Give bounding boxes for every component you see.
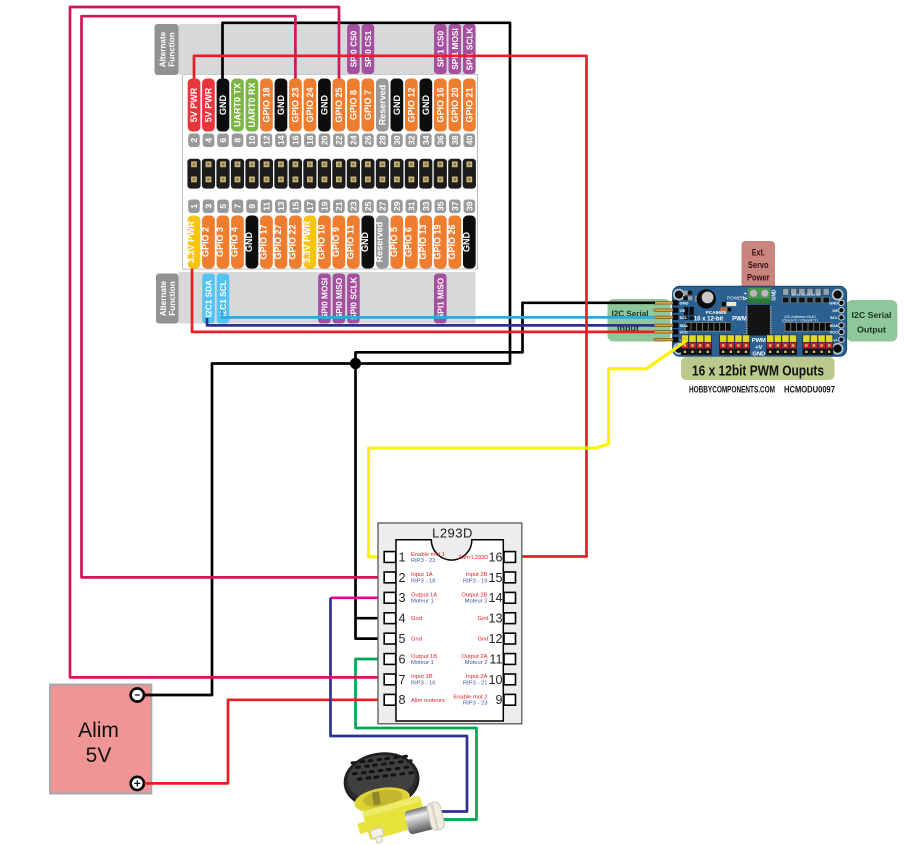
svg-text:GPIO 22: GPIO 22 xyxy=(287,224,297,259)
svg-text:Servo: Servo xyxy=(748,260,769,270)
svg-text:16: 16 xyxy=(488,550,502,564)
svg-text:GPIO 13: GPIO 13 xyxy=(418,224,428,259)
svg-text:GPIO 5: GPIO 5 xyxy=(389,227,399,257)
svg-text:3.3V PWR: 3.3V PWR xyxy=(186,220,196,263)
svg-text:SPI0 CS0: SPI0 CS0 xyxy=(348,30,358,67)
svg-text:GND: GND xyxy=(421,95,431,116)
svg-text:L293D: L293D xyxy=(432,526,473,541)
svg-text:Gnd: Gnd xyxy=(411,637,422,643)
svg-text:GPIO 10: GPIO 10 xyxy=(316,224,326,259)
svg-text:5V PWR: 5V PWR xyxy=(204,87,214,122)
svg-text:Ext.: Ext. xyxy=(752,248,765,258)
svg-text:6: 6 xyxy=(218,138,228,143)
svg-text:SPI0 SCLK: SPI0 SCLK xyxy=(348,277,358,320)
svg-text:GPIO 11: GPIO 11 xyxy=(345,225,355,260)
svg-text:29: 29 xyxy=(392,201,402,211)
svg-text:GPIO 26: GPIO 26 xyxy=(447,224,457,259)
svg-text:GND: GND xyxy=(218,95,228,116)
svg-text:GND: GND xyxy=(360,232,370,253)
svg-text:11: 11 xyxy=(489,652,502,666)
svg-text:OE: OE xyxy=(680,308,686,313)
svg-text:GND: GND xyxy=(392,95,402,116)
svg-text:POWER: POWER xyxy=(727,296,745,301)
svg-text:Power: Power xyxy=(747,273,770,283)
svg-text:Output: Output xyxy=(857,325,886,335)
svg-text:SPI1 CS0: SPI1 CS0 xyxy=(435,30,445,67)
svg-text:Enable mot 1: Enable mot 1 xyxy=(411,552,445,558)
svg-text:GPIO 9: GPIO 9 xyxy=(331,227,341,257)
svg-text:PWM: PWM xyxy=(752,338,766,344)
svg-text:21: 21 xyxy=(334,201,344,211)
svg-text:GPIO 3: GPIO 3 xyxy=(215,227,225,257)
svg-text:+V: +V xyxy=(755,345,762,351)
svg-text:26: 26 xyxy=(363,135,373,145)
svg-text:Input 2B: Input 2B xyxy=(466,572,488,578)
svg-text:38: 38 xyxy=(450,135,460,145)
svg-text:34: 34 xyxy=(421,135,431,145)
svg-text:13: 13 xyxy=(276,201,286,211)
svg-text:31: 31 xyxy=(407,201,417,211)
svg-text:Output 2B: Output 2B xyxy=(461,593,487,599)
svg-text:2: 2 xyxy=(189,138,199,143)
svg-text:16: 16 xyxy=(291,135,301,145)
svg-text:Moteur 1: Moteur 1 xyxy=(411,599,434,605)
svg-text:Enable mot 2: Enable mot 2 xyxy=(453,695,487,701)
svg-text:RIP3 - 18: RIP3 - 18 xyxy=(411,578,436,584)
svg-text:10: 10 xyxy=(247,135,257,145)
svg-text:GPIO 4: GPIO 4 xyxy=(230,227,240,257)
svg-text:22: 22 xyxy=(334,135,344,145)
svg-text:RIP3 - 19: RIP3 - 19 xyxy=(463,578,488,584)
svg-text:4: 4 xyxy=(399,612,406,626)
svg-text:HOBBYCOMPONENTS.COM: HOBBYCOMPONENTS.COM xyxy=(689,385,775,395)
svg-text:Input 1B: Input 1B xyxy=(411,674,433,680)
svg-text:GPIO 19: GPIO 19 xyxy=(432,224,442,259)
svg-text:GPIO 23: GPIO 23 xyxy=(291,87,301,122)
svg-text:10: 10 xyxy=(488,673,502,687)
svg-text:5: 5 xyxy=(399,632,406,646)
svg-text:VCC: VCC xyxy=(680,330,689,335)
svg-text:V+: V+ xyxy=(833,337,839,342)
svg-text:GND: GND xyxy=(680,301,689,306)
svg-text:SCL: SCL xyxy=(680,315,689,320)
svg-text:SPI1 MISO: SPI1 MISO xyxy=(435,277,445,319)
svg-text:Alim moteurs: Alim moteurs xyxy=(411,698,445,704)
svg-text:19: 19 xyxy=(320,201,330,211)
svg-text:GPIO 18: GPIO 18 xyxy=(262,87,272,122)
svg-text:23: 23 xyxy=(349,201,359,211)
svg-text:GPIO 25: GPIO 25 xyxy=(334,87,344,122)
svg-text:GPIO 20: GPIO 20 xyxy=(450,87,460,122)
svg-text:16 x 12-bit: 16 x 12-bit xyxy=(694,317,723,323)
svg-text:Reserved: Reserved xyxy=(374,222,384,263)
svg-text:Function: Function xyxy=(168,32,177,67)
svg-text:13: 13 xyxy=(488,612,502,626)
svg-text:GPIO 8: GPIO 8 xyxy=(349,90,359,120)
svg-text:Alternate: Alternate xyxy=(158,31,167,67)
svg-text:GND: GND xyxy=(276,95,286,116)
svg-text:GND: GND xyxy=(320,95,330,116)
svg-text:GND: GND xyxy=(829,301,838,306)
svg-text:GPIO 2: GPIO 2 xyxy=(201,227,211,257)
svg-text:SPI0 MISO: SPI0 MISO xyxy=(334,277,344,319)
svg-text:GND: GND xyxy=(461,232,471,253)
svg-text:7: 7 xyxy=(399,673,406,687)
svg-text:Gnd: Gnd xyxy=(411,616,422,622)
svg-text:32: 32 xyxy=(407,135,417,145)
svg-text:24: 24 xyxy=(349,135,359,145)
svg-text:UART0 RX: UART0 RX xyxy=(247,82,257,127)
svg-text:SPI0 MOSI: SPI0 MOSI xyxy=(319,278,329,320)
svg-text:15: 15 xyxy=(291,201,301,211)
svg-text:SDA: SDA xyxy=(680,323,689,328)
svg-text:SPI0 CS1: SPI0 CS1 xyxy=(363,30,373,67)
svg-text:Alim L293D: Alim L293D xyxy=(459,555,489,561)
svg-text:A0 A1 A2 A3 A4 A5: A0 A1 A2 A3 A4 A5 xyxy=(792,293,821,297)
svg-text:RIP3 - 23: RIP3 - 23 xyxy=(463,701,488,707)
svg-text:GPIO 12: GPIO 12 xyxy=(407,87,417,122)
svg-text:GPIO 6: GPIO 6 xyxy=(403,227,413,257)
svg-text:11: 11 xyxy=(262,201,272,210)
svg-text:Output 1A: Output 1A xyxy=(411,593,437,599)
svg-text:37: 37 xyxy=(450,201,460,211)
svg-text:16 x 12bit PWM Ouputs: 16 x 12bit PWM Ouputs xyxy=(692,364,824,380)
svg-text:Reserved: Reserved xyxy=(378,85,388,126)
svg-text:3.3V PWR: 3.3V PWR xyxy=(302,220,312,263)
svg-text:18: 18 xyxy=(305,135,315,145)
svg-text:Alim: Alim xyxy=(78,719,119,742)
svg-text:Gnd: Gnd xyxy=(478,637,489,643)
svg-text:5V PWR: 5V PWR xyxy=(189,87,199,122)
svg-text:GPIO 24: GPIO 24 xyxy=(305,87,315,122)
svg-text:GND: GND xyxy=(771,289,777,301)
svg-text:1: 1 xyxy=(399,550,406,564)
svg-text:12: 12 xyxy=(262,135,272,145)
svg-text:39: 39 xyxy=(464,201,474,211)
svg-text:GPIO 16: GPIO 16 xyxy=(436,87,446,122)
svg-text:RIP3 - 21: RIP3 - 21 xyxy=(463,680,488,686)
svg-text:14: 14 xyxy=(488,591,502,605)
svg-text:1: 1 xyxy=(189,204,199,209)
svg-text:28: 28 xyxy=(378,135,388,145)
svg-text:GND: GND xyxy=(752,351,765,357)
svg-text:OE: OE xyxy=(832,308,838,313)
svg-text:9: 9 xyxy=(495,693,502,707)
svg-text:25: 25 xyxy=(363,201,373,211)
svg-text:RIP3 - 22: RIP3 - 22 xyxy=(411,558,436,564)
svg-text:3: 3 xyxy=(399,591,406,605)
svg-text:15: 15 xyxy=(488,571,502,585)
svg-text:6: 6 xyxy=(399,652,406,666)
svg-text:27: 27 xyxy=(378,201,388,211)
svg-text:40: 40 xyxy=(464,135,474,145)
svg-text:GPIO 7: GPIO 7 xyxy=(363,90,373,120)
svg-text:8: 8 xyxy=(399,693,406,707)
svg-text:5: 5 xyxy=(218,204,228,209)
svg-text:Output 2A: Output 2A xyxy=(461,654,487,660)
svg-text:I2C1 SDA: I2C1 SDA xyxy=(204,280,214,317)
svg-text:Output 1B: Output 1B xyxy=(411,654,437,660)
svg-text:9: 9 xyxy=(247,204,257,209)
svg-text:PCA9685: PCA9685 xyxy=(706,310,727,316)
svg-text:I2C Serial: I2C Serial xyxy=(852,310,892,320)
svg-text:Moteur 2: Moteur 2 xyxy=(465,599,488,605)
svg-text:Input 2A: Input 2A xyxy=(466,674,488,680)
svg-text:2: 2 xyxy=(399,571,406,585)
svg-text:3: 3 xyxy=(204,204,214,209)
svg-text:5V: 5V xyxy=(86,744,112,767)
svg-text:35: 35 xyxy=(435,201,445,211)
svg-text:17: 17 xyxy=(305,201,315,211)
svg-text:Moteur 1: Moteur 1 xyxy=(411,660,434,666)
svg-text:4: 4 xyxy=(204,138,214,143)
svg-text:20: 20 xyxy=(320,135,330,145)
svg-text:UART0 TX: UART0 TX xyxy=(233,83,243,127)
svg-text:7: 7 xyxy=(233,204,243,209)
svg-text:VCC: VCC xyxy=(830,330,839,335)
svg-text:GND: GND xyxy=(244,232,254,253)
svg-text:Gnd: Gnd xyxy=(478,616,489,622)
svg-text:Input 1A: Input 1A xyxy=(411,572,433,578)
svg-text:GPIO 27: GPIO 27 xyxy=(273,224,283,259)
svg-text:SCL: SCL xyxy=(830,315,839,320)
svg-text:Moteur 2: Moteur 2 xyxy=(465,660,488,666)
svg-text:SDA: SDA xyxy=(830,323,839,328)
svg-text:SPI1 MOSI: SPI1 MOSI xyxy=(450,28,460,70)
svg-text:GPIO 21: GPIO 21 xyxy=(465,87,475,122)
svg-text:14: 14 xyxy=(276,135,286,145)
svg-text:33: 33 xyxy=(421,201,431,211)
svg-text:Function: Function xyxy=(168,281,177,316)
svg-text:12: 12 xyxy=(488,632,502,646)
svg-text:HCMODU0097: HCMODU0097 xyxy=(784,385,835,395)
svg-text:PWM: PWM xyxy=(732,317,747,323)
svg-text:36: 36 xyxy=(435,135,445,145)
svg-text:8: 8 xyxy=(233,138,243,143)
svg-text:30: 30 xyxy=(392,135,402,145)
svg-text:GPIO 17: GPIO 17 xyxy=(258,224,268,259)
svg-text:SPI1 SCLK: SPI1 SCLK xyxy=(464,28,474,71)
svg-text:Alternate: Alternate xyxy=(159,280,168,316)
svg-text:RIP3 - 16: RIP3 - 16 xyxy=(411,680,436,686)
